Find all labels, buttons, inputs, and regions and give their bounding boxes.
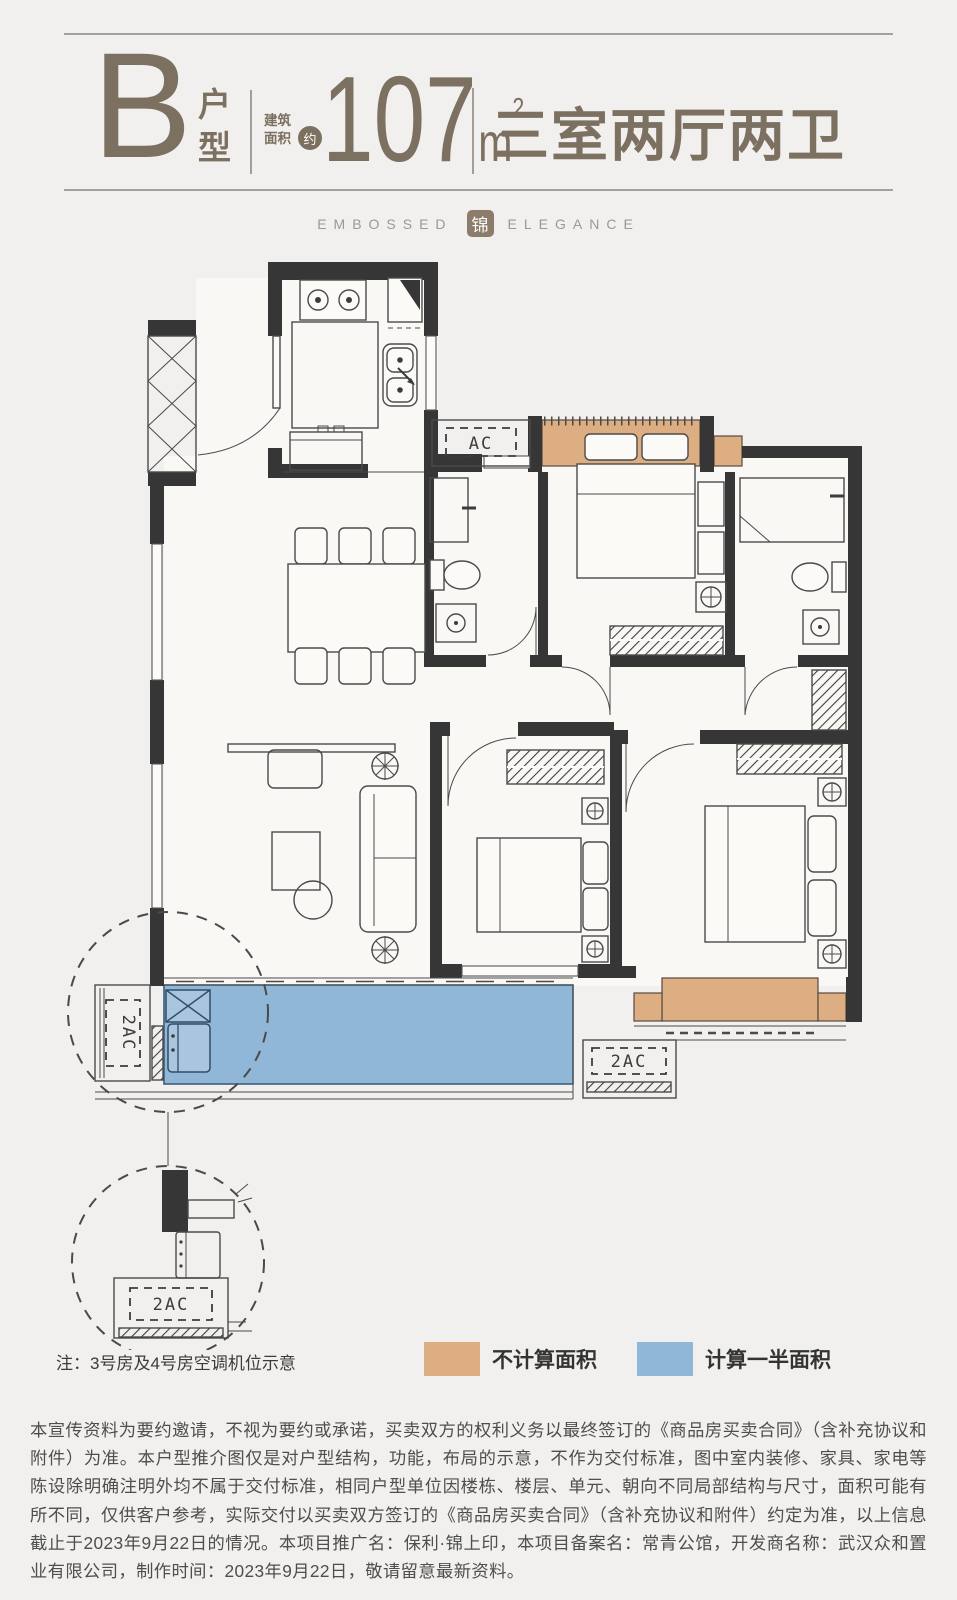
plan-note: 注：3号房及4号房空调机位示意	[56, 1349, 296, 1374]
guest-toilet	[430, 560, 444, 590]
header-divider-2	[472, 88, 474, 174]
ac2-right-label: 2AC	[611, 1052, 648, 1072]
dining-table	[288, 564, 425, 652]
area-caption: 建筑面积	[264, 112, 296, 148]
legend-item-half-counted: 计算一半面积	[637, 1342, 831, 1376]
legend-label: 不计算面积	[492, 1344, 597, 1374]
legend-swatch-blue	[637, 1342, 693, 1376]
kitchen-sink	[383, 344, 417, 406]
brand-seal: 锦	[467, 210, 494, 237]
sofa	[360, 786, 416, 932]
bed-second	[477, 838, 581, 932]
ac2-balcony-label: 2AC	[118, 1015, 138, 1052]
floor-plan: AC	[0, 250, 957, 1350]
washing-machine	[168, 1024, 210, 1072]
area-value: 107	[322, 58, 477, 180]
tagline-left: EMBOSSED	[317, 216, 452, 232]
brand-tagline: EMBOSSED 锦 ELEGANCE	[0, 210, 957, 237]
ac-label: AC	[469, 434, 493, 454]
master-toilet	[832, 562, 846, 592]
ac-platform-balcony: 2AC	[95, 985, 163, 1081]
tagline-right: ELEGANCE	[508, 216, 640, 232]
balcony	[166, 990, 210, 1072]
floorplan-flyer: B 户型 建筑面积 约 107m2 三室两厅两卫 EMBOSSED 锦 ELEG…	[0, 0, 957, 1600]
bed-north	[577, 464, 695, 578]
unit-type-label: 户型	[198, 84, 236, 170]
bed-master	[705, 806, 805, 942]
dining-set	[288, 528, 425, 684]
balcony-half-area-zone	[164, 985, 573, 1084]
ac-unit	[176, 1232, 220, 1278]
layout-title: 三室两厅两卫	[492, 90, 846, 172]
unit-type-letter: B	[92, 30, 192, 180]
hall-closet	[812, 670, 846, 730]
footer-disclaimer: 本宣传资料为要约邀请，不视为要约或承诺，买卖双方的权利义务以最终签订的《商品房买…	[30, 1416, 927, 1585]
legend-item-not-counted: 不计算面积	[424, 1342, 597, 1376]
header-rule-bottom	[64, 189, 893, 191]
approx-badge: 约	[298, 126, 322, 150]
utility-shaft	[148, 336, 196, 472]
legend-swatch-tan	[424, 1342, 480, 1376]
stove	[300, 280, 366, 320]
ac2-detail-label: 2AC	[153, 1295, 190, 1315]
ac-platform-right: 2AC	[583, 1040, 676, 1098]
header-divider-1	[250, 90, 252, 174]
legend-label: 计算一半面积	[705, 1344, 831, 1374]
legend: 不计算面积 计算一半面积	[424, 1342, 831, 1376]
